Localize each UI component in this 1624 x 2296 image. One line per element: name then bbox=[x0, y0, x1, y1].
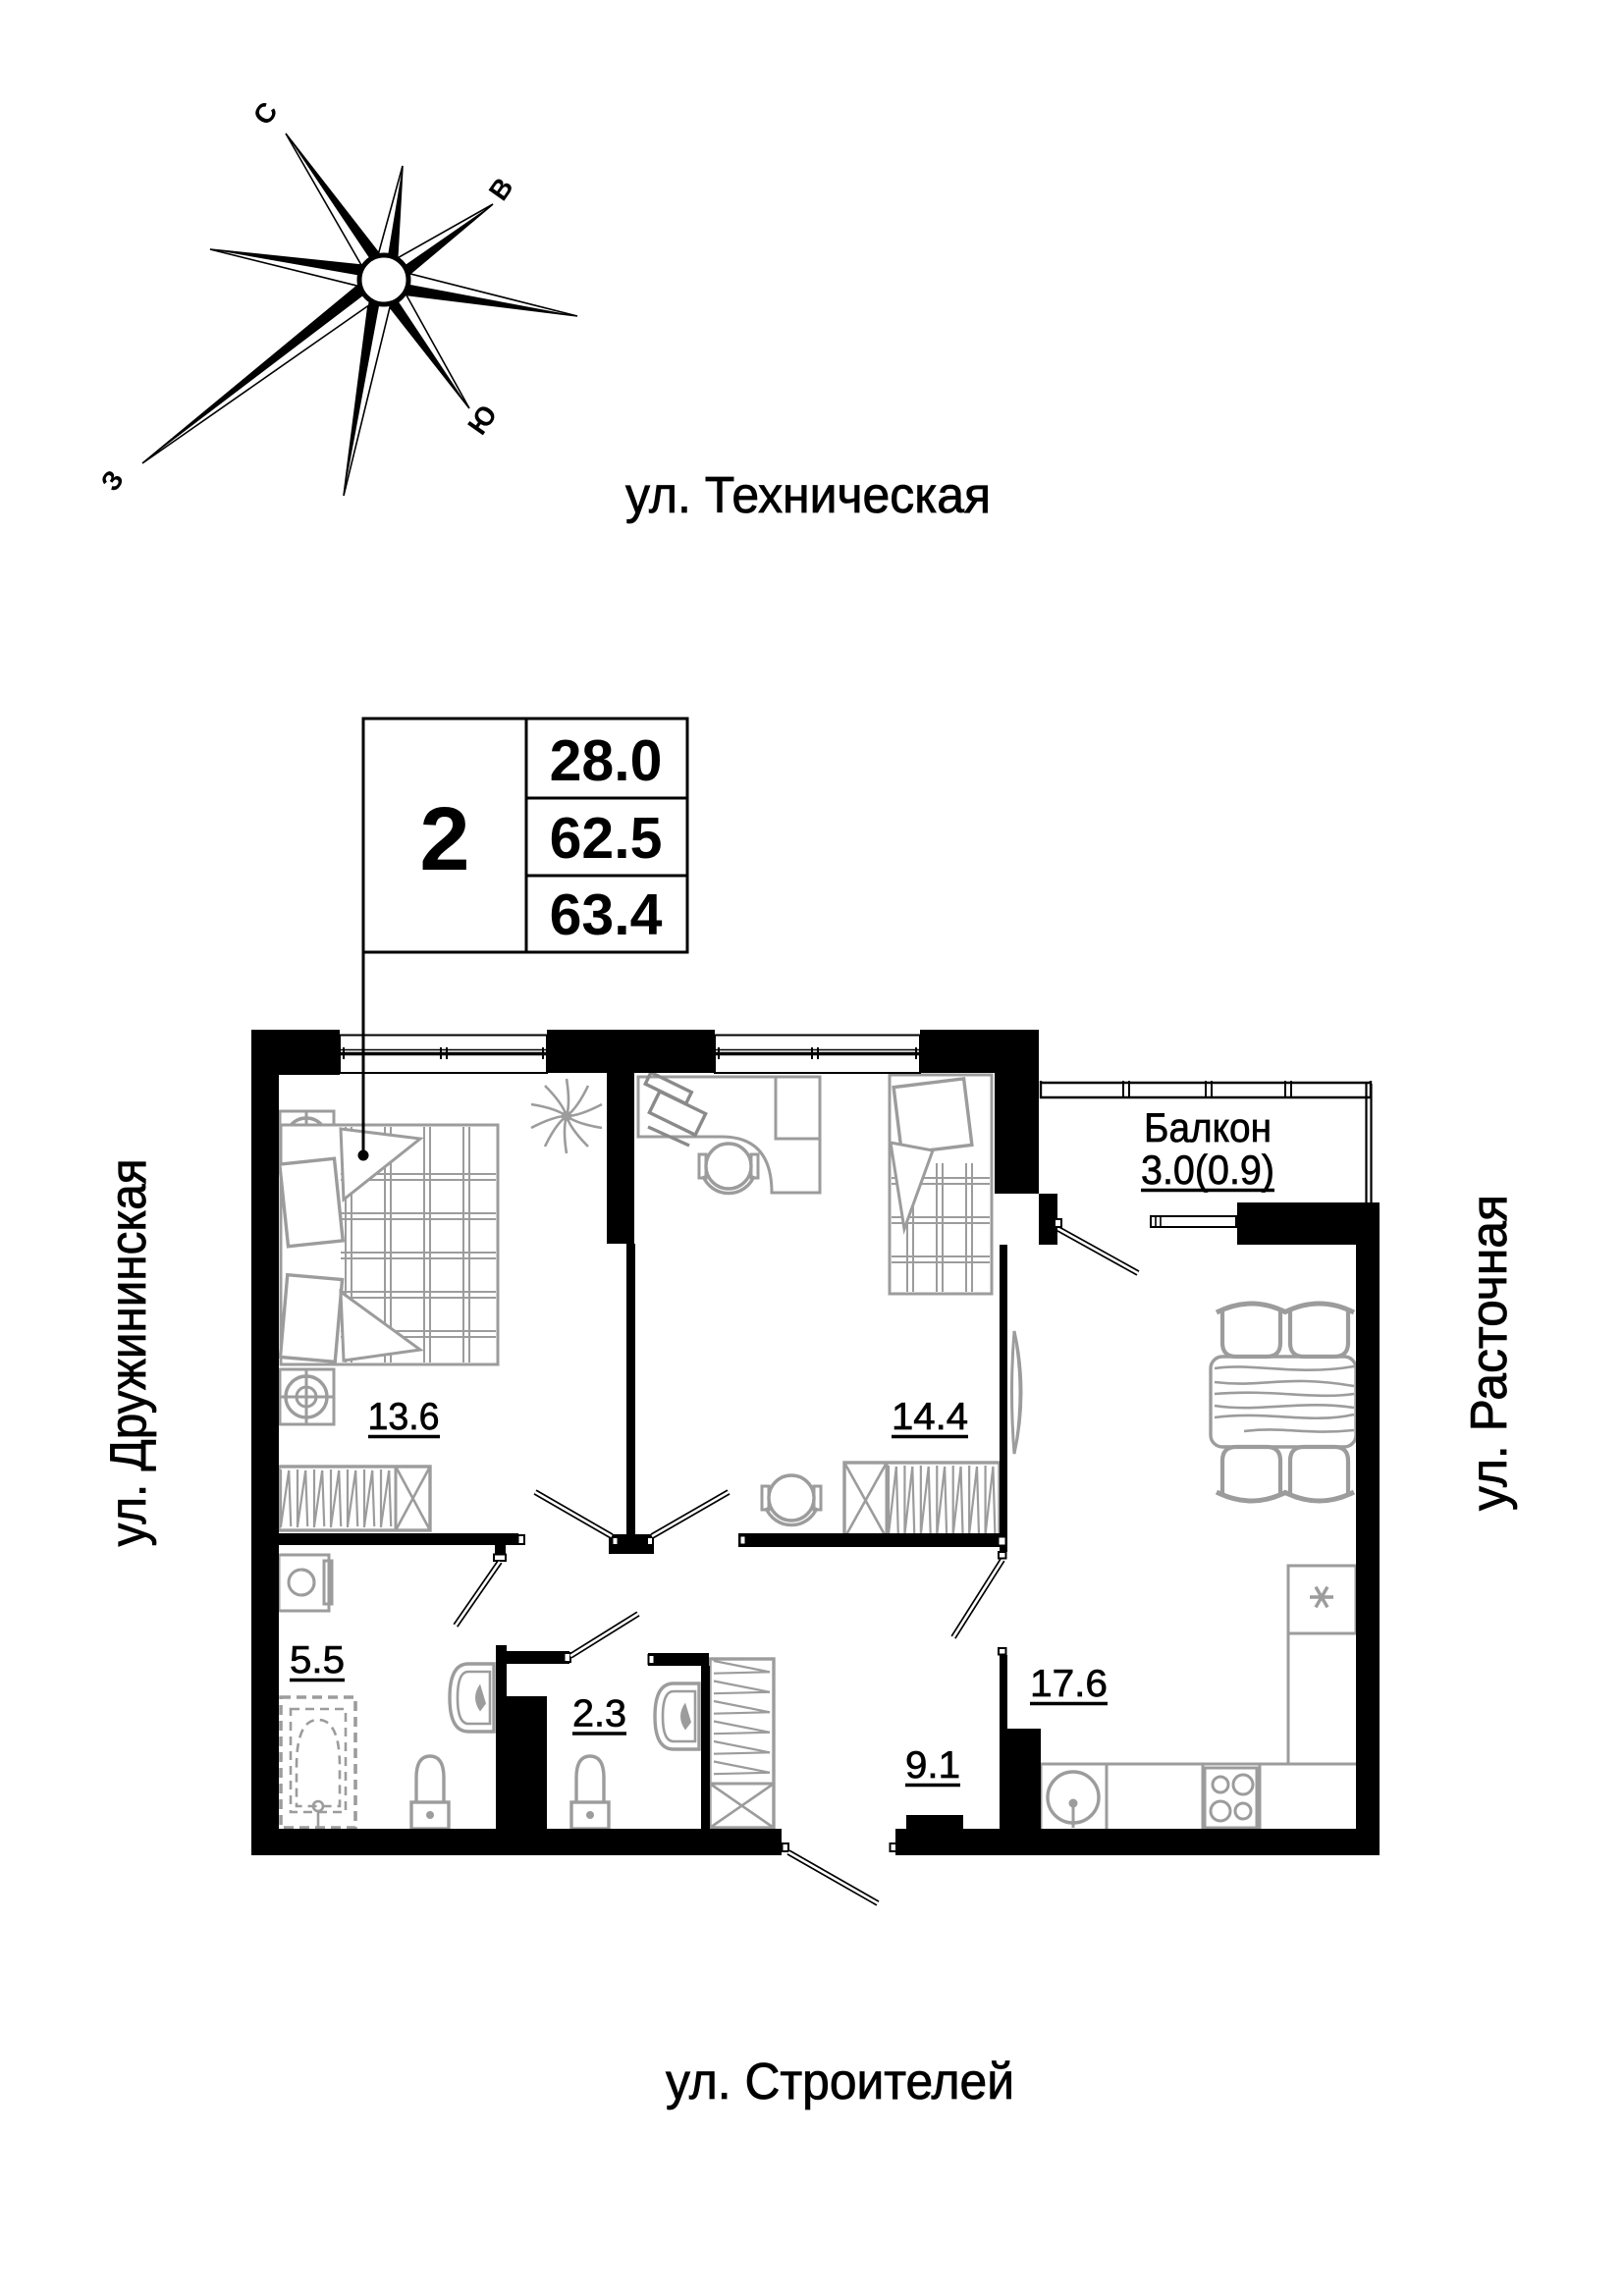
svg-text:62.5: 62.5 bbox=[550, 806, 663, 871]
svg-text:2: 2 bbox=[419, 789, 469, 889]
svg-text:Балкон: Балкон bbox=[1144, 1104, 1272, 1150]
svg-text:5.5: 5.5 bbox=[290, 1639, 345, 1682]
svg-text:ул. Дружининская: ул. Дружининская bbox=[100, 1159, 157, 1547]
svg-text:2.3: 2.3 bbox=[572, 1693, 626, 1735]
svg-text:28.0: 28.0 bbox=[550, 728, 663, 793]
svg-text:9.1: 9.1 bbox=[905, 1744, 960, 1787]
svg-text:14.4: 14.4 bbox=[892, 1396, 968, 1438]
svg-text:17.6: 17.6 bbox=[1030, 1663, 1108, 1705]
svg-text:3.0(0.9): 3.0(0.9) bbox=[1141, 1147, 1274, 1193]
svg-text:13.6: 13.6 bbox=[368, 1396, 440, 1438]
svg-text:ул. Строителей: ул. Строителей bbox=[666, 2054, 1014, 2110]
svg-text:63.4: 63.4 bbox=[550, 882, 663, 947]
svg-text:ул. Техническая: ул. Техническая bbox=[625, 467, 991, 524]
svg-text:ул. Расточная: ул. Расточная bbox=[1461, 1195, 1518, 1511]
